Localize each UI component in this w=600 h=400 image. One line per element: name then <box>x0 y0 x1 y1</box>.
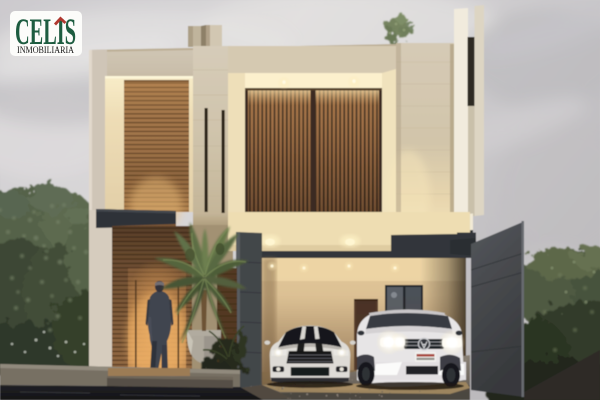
svg-text:INMOBILIARIA: INMOBILIARIA <box>17 45 74 56</box>
